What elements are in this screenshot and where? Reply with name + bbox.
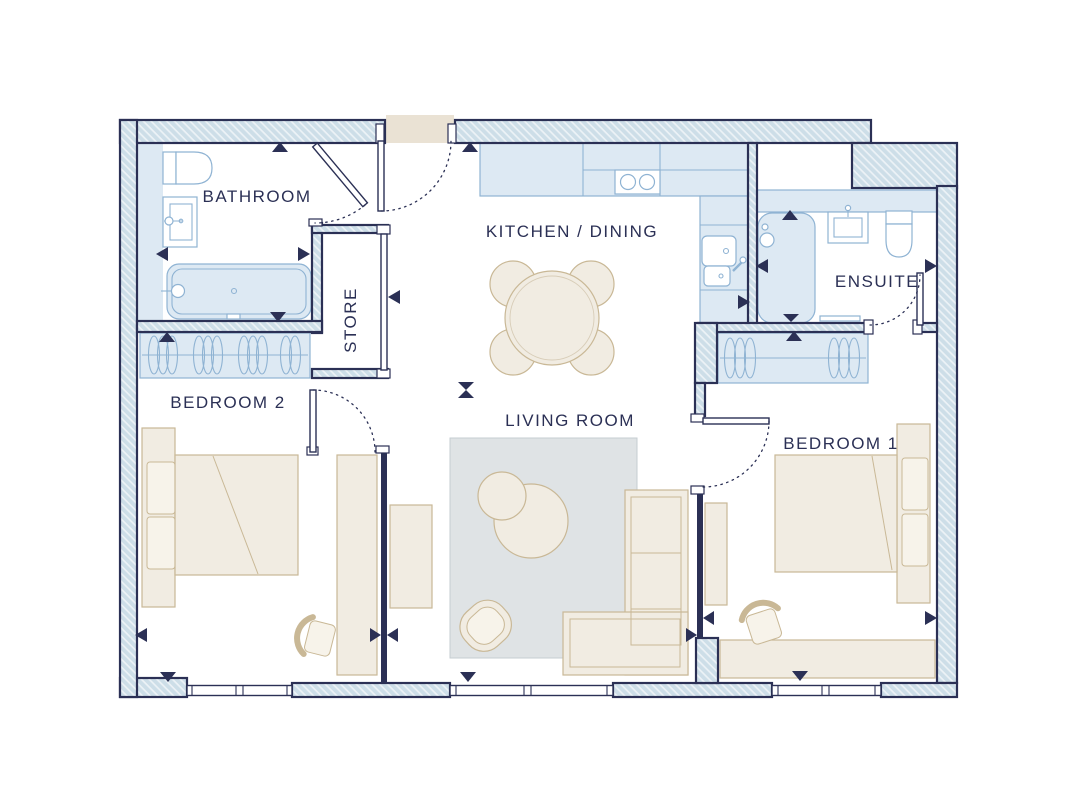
- floor-plan: BATHROOM KITCHEN / DINING ENSUITE STORE …: [0, 0, 1080, 810]
- bathroom-counter-strip: [137, 143, 163, 321]
- window-living: [450, 686, 613, 696]
- wall-bottom: [613, 683, 772, 697]
- label-bathroom: BATHROOM: [203, 187, 312, 206]
- toilet-icon: [163, 152, 212, 184]
- label-bedroom2: BEDROOM 2: [170, 393, 286, 412]
- wall-top-left: [120, 120, 385, 143]
- bedroom2-door: [307, 390, 389, 455]
- room-bathroom: [137, 143, 311, 321]
- label-bedroom1: BEDROOM 1: [783, 434, 899, 453]
- marker-right-icon: [925, 259, 937, 273]
- marker-right-icon: [298, 247, 310, 261]
- basin-icon: [163, 197, 197, 247]
- bathtub-icon: [161, 264, 311, 319]
- room-bedroom2: [140, 333, 377, 675]
- label-ensuite: ENSUITE: [835, 272, 919, 291]
- entrance-mat: [386, 115, 454, 143]
- store-door: [377, 225, 390, 378]
- sideboard-icon: [390, 505, 432, 608]
- wall-step: [852, 143, 957, 188]
- label-store: STORE: [341, 287, 360, 353]
- bedroom1-door: [691, 414, 769, 494]
- double-bed-icon: [142, 428, 298, 607]
- marker-left-icon: [703, 611, 714, 625]
- chair-icon: [293, 615, 337, 661]
- hob-icon: [615, 170, 660, 194]
- marker-down-icon: [458, 382, 474, 390]
- chair-icon: [738, 598, 786, 647]
- bathroom-door: [309, 143, 367, 226]
- wall-bedroom2-living: [381, 452, 387, 683]
- desk-icon: [337, 455, 377, 675]
- label-living-room: LIVING ROOM: [505, 411, 635, 430]
- marker-left-icon: [388, 290, 400, 304]
- wall-bathroom-bottom: [137, 321, 322, 332]
- marker-down-icon: [460, 672, 476, 682]
- wall-kitchen-partition: [748, 143, 757, 324]
- label-kitchen-dining: KITCHEN / DINING: [486, 222, 658, 241]
- wall-top-right: [455, 120, 871, 143]
- marker-right-icon: [925, 611, 937, 625]
- wall-living-bedroom1: [697, 492, 703, 638]
- room-bedroom1: [705, 333, 935, 678]
- bath-mat-icon: [820, 316, 860, 321]
- wall-left: [120, 120, 137, 697]
- wall-bottom-right-corner: [881, 683, 957, 697]
- dining-table-icon: [505, 271, 599, 365]
- marker-up-icon: [458, 390, 474, 398]
- wall-ensuite-bottom: [698, 323, 868, 332]
- room-ensuite: [757, 190, 937, 323]
- wall-bottom: [292, 683, 450, 697]
- coffee-table-icon: [478, 472, 526, 520]
- desk-icon: [720, 640, 935, 678]
- wall-bedroom1-thin: [695, 383, 705, 416]
- toilet-icon: [886, 211, 912, 257]
- dining-set: [490, 261, 614, 375]
- wall-bathroom-partition: [312, 223, 322, 333]
- marker-left-icon: [387, 628, 398, 642]
- window-bedroom2: [187, 686, 292, 696]
- tv-unit-icon: [705, 503, 727, 605]
- wall-bedroom1-top-block: [695, 323, 717, 383]
- window-bedroom1: [772, 686, 881, 696]
- wall-bedroom1-bottom-block: [696, 638, 718, 683]
- wall-right: [937, 186, 957, 683]
- room-living: [390, 438, 688, 675]
- windows: [187, 686, 881, 696]
